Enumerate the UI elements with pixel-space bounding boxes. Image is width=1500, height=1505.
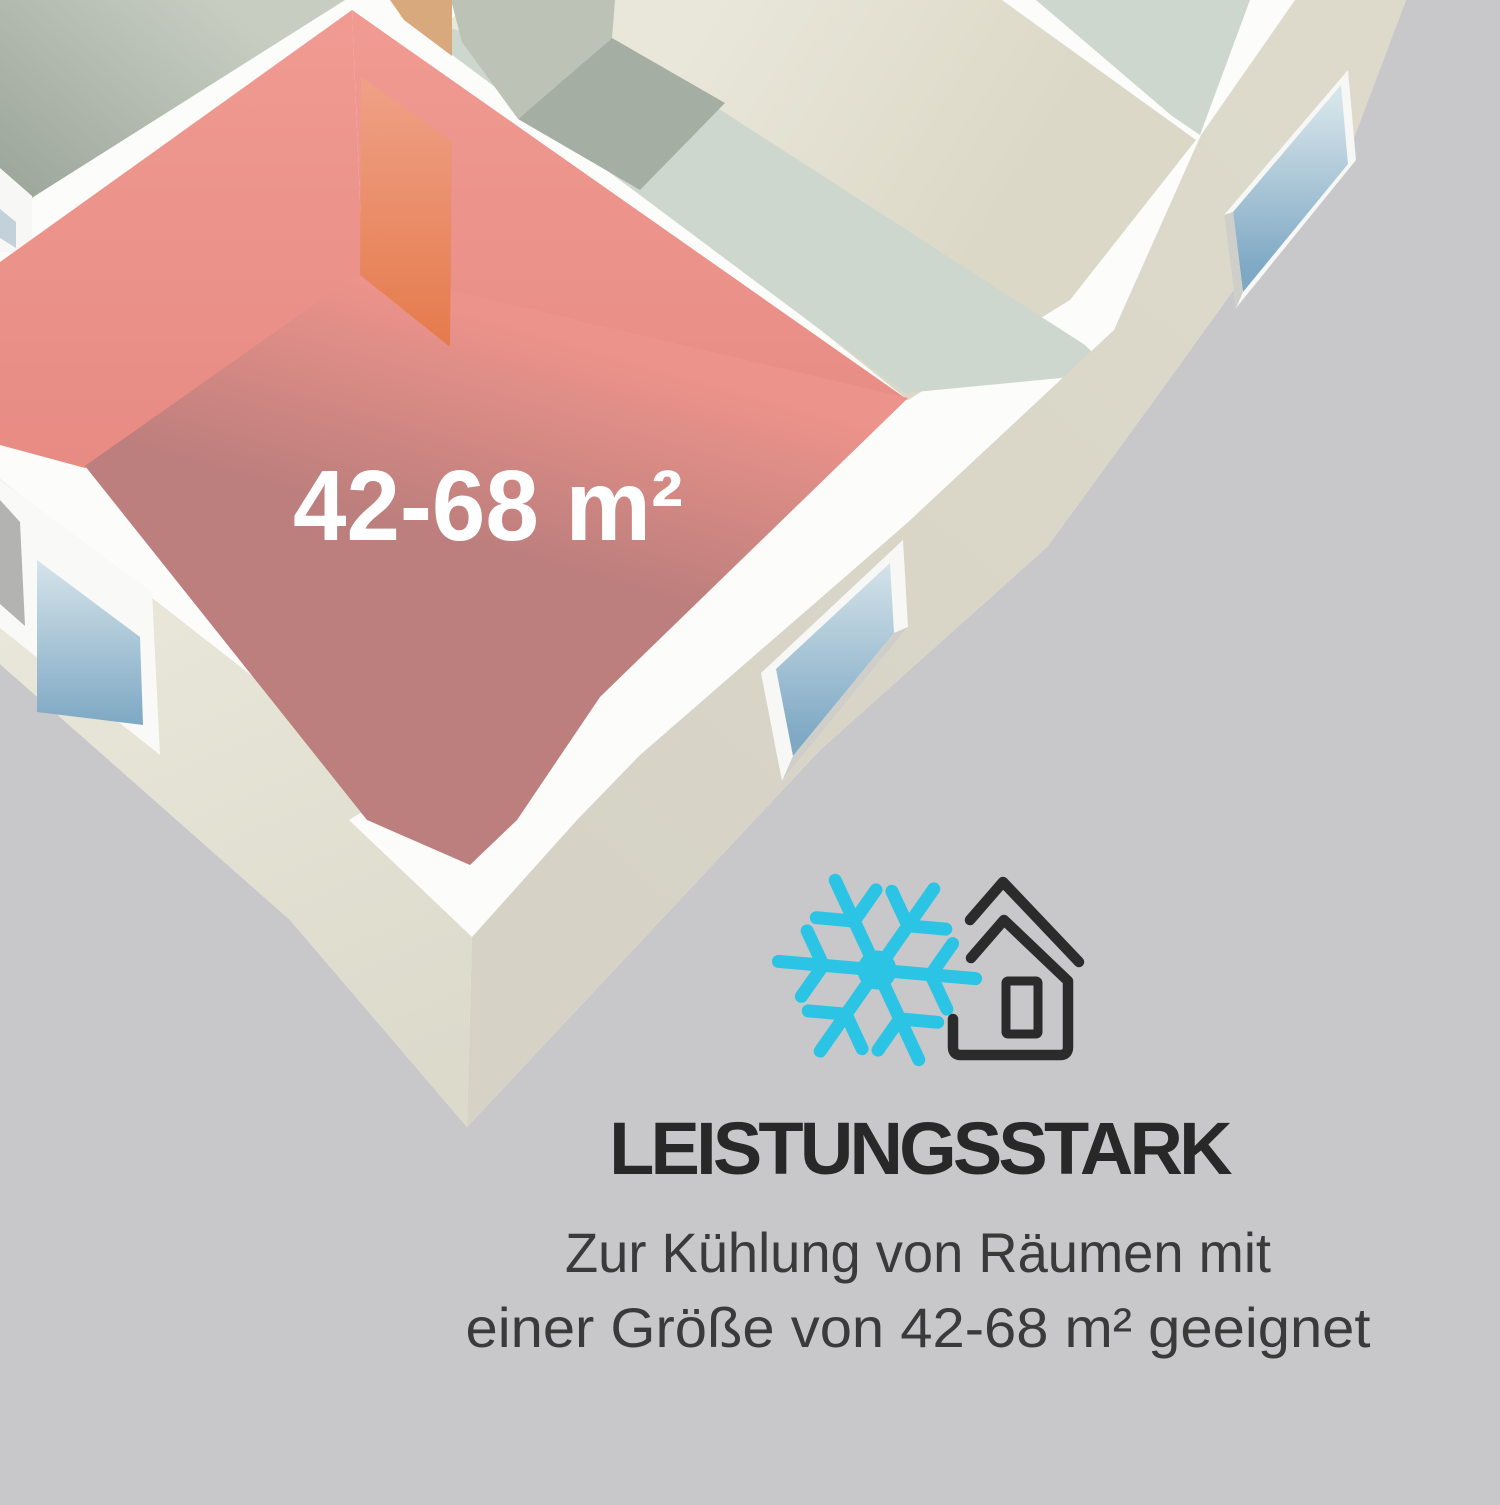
svg-text:Zur Kühlung von Räumen mit: Zur Kühlung von Räumen mit [565, 1221, 1271, 1284]
svg-text:42-68 m²: 42-68 m² [293, 450, 683, 562]
svg-text:einer Größe von 42-68 m² geeig: einer Größe von 42-68 m² geeignet [466, 1296, 1371, 1359]
svg-text:LEISTUNGSSTARK: LEISTUNGSSTARK [609, 1107, 1232, 1190]
